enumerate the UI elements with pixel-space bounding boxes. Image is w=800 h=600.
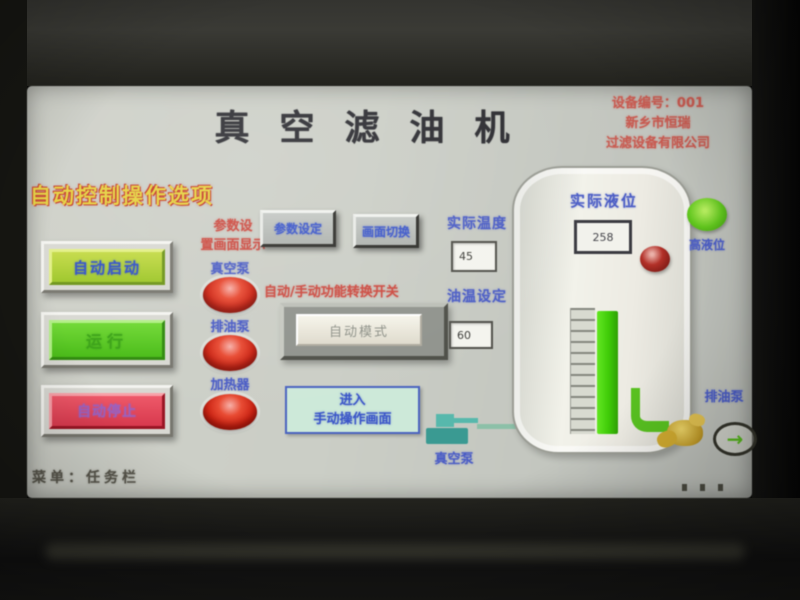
set-temp-label: 油温设定: [430, 286, 524, 306]
high-level-lamp-icon: [687, 198, 727, 231]
page-title: 真空滤油机: [137, 100, 617, 151]
screen-switch-button[interactable]: 画面切换: [353, 214, 419, 248]
enter-label-line1: 进入: [339, 391, 365, 411]
suction-pipe: [477, 424, 519, 429]
level-gauge-bar: [597, 311, 618, 434]
vendor-city: 新乡市恒瑞: [572, 114, 744, 134]
high-level-label: 高液位: [681, 236, 733, 253]
vacuum-pump-stub: [454, 418, 478, 423]
actual-temp-display: 45: [451, 241, 497, 272]
corner-marks: [682, 476, 742, 495]
heater-lamp-label: 加热器: [185, 374, 275, 393]
actual-temp-label: 实际温度: [431, 213, 523, 233]
discharge-pump-lamp-icon: [203, 335, 257, 371]
level-gauge-scale: [570, 308, 595, 434]
enter-manual-screen-button[interactable]: 进入 手动操作画面: [285, 386, 420, 434]
level-display: 258: [574, 220, 632, 254]
auto-start-button-label: 自动启动: [49, 249, 165, 285]
discharge-pump-lamp-label: 排油泵: [185, 316, 275, 335]
enter-label-line2: 手动操作画面: [313, 410, 391, 430]
bezel-highlight: [45, 543, 745, 560]
vacuum-pump-lamp-icon: [203, 277, 257, 313]
corner-mark: [718, 484, 723, 491]
tank-alarm-lamp-icon: [640, 246, 670, 272]
auto-stop-button-label: 自动停止: [49, 393, 165, 429]
mode-switch-button[interactable]: 自动模式: [280, 303, 448, 360]
level-label: 实际液位: [554, 190, 654, 211]
auto-stop-button[interactable]: 自动停止: [41, 385, 173, 437]
bezel-top: [0, 0, 800, 86]
status-bar: 菜单：任务栏: [32, 467, 252, 487]
set-temp-input[interactable]: 60: [449, 321, 493, 349]
hmi-screen: 真空滤油机 设备编号：001 新乡市恒瑞 过滤设备有限公司 自动控制操作选项 自…: [27, 86, 752, 498]
flow-direction-icon: →: [713, 422, 757, 456]
heater-lamp-icon: [203, 394, 257, 430]
device-number: 设备编号：001: [572, 94, 744, 114]
vacuum-pump-lamp-label: 真空泵: [185, 258, 275, 277]
discharge-pump-icon: [657, 414, 717, 452]
vendor-info: 设备编号：001 新乡市恒瑞 过滤设备有限公司: [572, 94, 744, 154]
vacuum-pump-body: [426, 428, 468, 444]
corner-mark: [700, 484, 705, 491]
vacuum-pump-motor: [436, 414, 454, 427]
mode-switch-label: 自动模式: [296, 314, 422, 346]
param-setting-button[interactable]: 参数设定: [260, 210, 336, 247]
vacuum-pump-label: 真空泵: [419, 448, 489, 467]
auto-start-button[interactable]: 自动启动: [41, 241, 173, 293]
corner-mark: [682, 484, 687, 491]
hmi-photo: 真空滤油机 设备编号：001 新乡市恒瑞 过滤设备有限公司 自动控制操作选项 自…: [0, 0, 800, 600]
vacuum-pump-icon: [420, 406, 484, 446]
auto-control-heading: 自动控制操作选项: [30, 180, 270, 210]
run-button[interactable]: 运行: [41, 312, 173, 368]
vendor-company: 过滤设备有限公司: [572, 134, 744, 154]
discharge-pump-label: 排油泵: [697, 386, 751, 405]
run-button-label: 运行: [49, 320, 165, 360]
